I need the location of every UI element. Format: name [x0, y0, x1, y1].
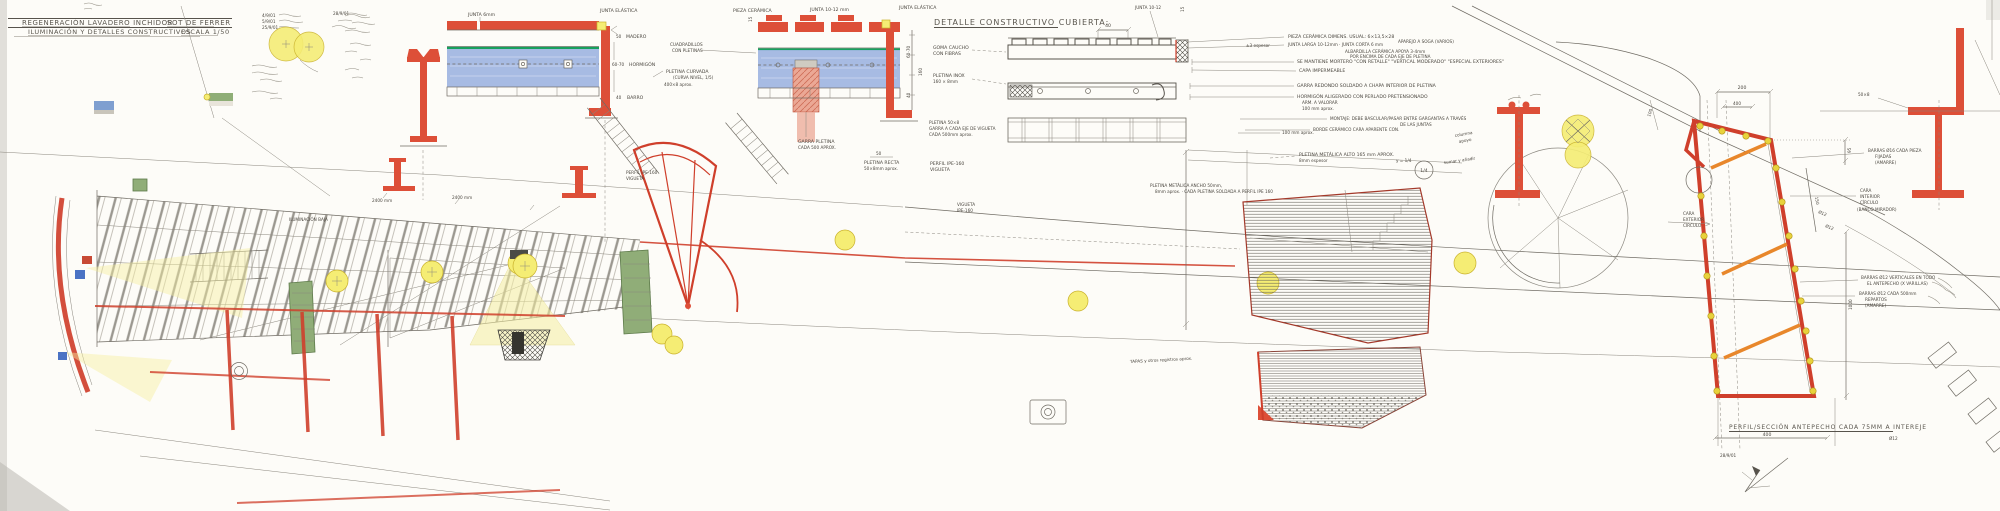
- dim-60-70: 60-70: [906, 45, 911, 58]
- dim-40: 40: [906, 92, 911, 98]
- label-junta-elastica: JUNTA ELÁSTICA: [599, 7, 638, 14]
- planter: [133, 179, 147, 191]
- note-50x8: 50×8: [1858, 92, 1870, 97]
- label-pletina-inox-2: 160 × 8mm: [933, 79, 958, 84]
- dim-400-bottom: 400: [1763, 432, 1772, 438]
- label-barras12r-3: (AMARRE): [1865, 303, 1886, 308]
- water-body: [758, 50, 900, 88]
- label-pletina-curvada-2: (CURVA NIVEL, 1/5): [673, 75, 714, 80]
- wall-fixture: [82, 256, 92, 264]
- label-perfil-ipe-2: VIGUETA: [930, 167, 951, 173]
- section-title-antepecho: PERFIL/SECCIÓN ANTEPECHO CADA 75MM A INT…: [1729, 424, 1927, 431]
- annotation: DE LAS JUNTAS: [1400, 122, 1432, 127]
- dim-hormigon: 60-70: [612, 62, 625, 67]
- mini-sketch-green: [209, 93, 233, 101]
- dim-100mm: 100 mm aprox.: [1282, 130, 1314, 135]
- label-cuadradillos-2: CON PLETINAS: [672, 48, 703, 53]
- label-garra-pletina-2: CADA 500 APROX.: [798, 145, 836, 150]
- scale-label: ESCALA 1/50: [181, 28, 230, 36]
- label-garra-eje: GARRA A CADA EJE DE VIGUETA: [929, 126, 996, 131]
- steel-edge-column: [886, 25, 894, 113]
- label-barras16-3: (AMARRE): [1875, 160, 1896, 165]
- label-cada-500: CADA 500mm aprox.: [929, 132, 973, 137]
- label-banco-mirador: (BANCO MIRADOR): [1857, 207, 1897, 212]
- steel-angle-vertical: [1956, 28, 1964, 114]
- label-cara-exterior: CARA: [1683, 211, 1695, 216]
- label-junta-top: JUNTA 10-12: [1134, 5, 1161, 10]
- section-title-cubierta: DETALLE CONSTRUCTIVO CUBIERTA:: [934, 18, 1109, 27]
- dim-95: 95: [1847, 147, 1852, 153]
- dim-200: 200: [1738, 85, 1747, 91]
- drawing-canvas: REGENERACIÓN LAVADERO INCHIDOR SOT DE FE…: [0, 0, 2000, 511]
- label-barras12r-2: REPARTOS: [1865, 297, 1887, 302]
- label-barras16: BARRAS Ø16 CADA PIEZA: [1868, 148, 1922, 153]
- annotation: CAPA IMPERMEABLE: [1299, 68, 1345, 74]
- label-pletina-50x8: PLETINA 50×8: [929, 120, 959, 125]
- label-pieza-ceramica: PIEZA CERÁMICA: [733, 7, 773, 14]
- label-barras12v-2: EL ANTEPECHO (X VARILLAS): [1867, 281, 1928, 286]
- label-pletina-alto-2: 8mm espesor: [1299, 158, 1328, 163]
- dim-400: 400: [1733, 101, 1741, 106]
- label-barras12r: BARRAS Ø12 CADA 500mm: [1859, 291, 1916, 296]
- label-cara-exterior-2: EXTERIOR: [1683, 217, 1704, 222]
- label-cara-interior: CARA: [1860, 188, 1872, 193]
- annotation: ARM. A VALORAR: [1302, 100, 1338, 105]
- annotation: GARRA REDONDO SOLDADO A CHAPA INTERIOR D…: [1297, 83, 1437, 89]
- dim-40-top: 40: [1105, 23, 1111, 29]
- annotation: PIEZA CERÁMICA DIMENS. USUAL: 6×13,5×28: [1288, 33, 1394, 40]
- dim-15: 15: [748, 16, 753, 22]
- crossed-luminaire: [1562, 115, 1594, 168]
- revision-date: 28/9/01: [1720, 453, 1736, 458]
- revision-date: 4/9/01: [262, 13, 276, 18]
- label-pletina-ancho-2: 8mm aprox. · CADA PLETINA SOLDADA A PERF…: [1155, 189, 1273, 194]
- label-junta-elastica: JUNTA ELÁSTICA: [898, 4, 937, 11]
- note-fraction: y = 1/4: [1396, 158, 1412, 163]
- label-hormigon: HORMIGÓN: [629, 61, 655, 68]
- annotation: APAREJO A SOGA (VARIOS): [1398, 39, 1454, 44]
- project-location: SOT DE FERRER: [167, 19, 231, 27]
- annotation: JUNTA LARGA 10-12mm · JUNTA CORTA 6 mm: [1287, 42, 1383, 47]
- label-perfil-ipe: PERFIL IPE-160: [930, 161, 964, 167]
- revision-date: 25/9/01: [262, 25, 278, 30]
- label-vigueta: VIGUETA: [957, 202, 975, 207]
- steel-edge-column: [601, 26, 610, 112]
- wall-fixture-blue: [75, 270, 85, 279]
- label-barras12v: BARRAS Ø12 VERTICALES EN TODO: [1861, 275, 1936, 280]
- dim-pletina-recta: 50: [876, 151, 882, 156]
- annotation: MONTAJE: DEBE BASCULAR/PASAR ENTRE GARGA…: [1330, 116, 1467, 121]
- project-title: REGENERACIÓN LAVADERO INCHIDOR: [22, 18, 173, 27]
- label-perfil-ipe-2: VIGUETA: [626, 176, 644, 181]
- dim-160: 160: [918, 68, 923, 76]
- annotation: POR ENCIMA DE CADA EJE DE PLETINA: [1350, 54, 1431, 59]
- ceramic-band: [447, 21, 599, 30]
- dim-dia12-bottom: Ø12: [1889, 436, 1898, 441]
- dim-madero: 50: [616, 34, 622, 39]
- note-fraction-circle: 1/4: [1420, 168, 1427, 174]
- label-pletina-ancho: PLETINA METÁLICA ANCHO 50mm,: [1150, 183, 1222, 188]
- annotation: BORDE CERÁMICO CARA APARENTE CON.: [1313, 127, 1399, 132]
- label-junta-6mm: JUNTA 6mm: [467, 12, 496, 18]
- dim-2400: 2400 mm: [372, 198, 392, 203]
- label-cuadradillos: CUADRADILLOS: [670, 42, 703, 47]
- ceramic-coping-bar: [1008, 45, 1176, 59]
- architectural-drawing-sheet: REGENERACIÓN LAVADERO INCHIDOR SOT DE FE…: [0, 0, 2000, 511]
- label-barro: BARRO: [627, 95, 644, 101]
- label-cara-exterior-3: CÍRCULO: [1683, 223, 1702, 228]
- label-goma-caucho-2: CON FIBRAS: [933, 51, 961, 57]
- label-cara-interior-3: CÍRCULO: [1860, 200, 1879, 205]
- label-pletina-curvada-3: 400×8 aprox.: [664, 82, 693, 87]
- dim-15b: 15: [1180, 6, 1185, 12]
- label-madero: MADERO: [626, 34, 647, 40]
- sheet-subtitle: ILUMINACIÓN Y DETALLES CONSTRUCTIVOS: [28, 27, 191, 36]
- annotation: 100 mm aprox.: [1302, 106, 1334, 111]
- label-junta-10-12: JUNTA 10-12 mm: [809, 7, 849, 13]
- annotation: SE MANTIENE MORTERO "CON RETALLE" "VERTI…: [1297, 59, 1504, 65]
- label-barras16-2: FIJADAS: [1875, 154, 1892, 159]
- dim-barro: 40: [616, 95, 622, 100]
- wall-fixture-blue: [58, 352, 67, 360]
- dim-2400: 2400 mm: [452, 195, 472, 200]
- label-perfil-ipe: PERFIL IPE-160: [626, 170, 658, 175]
- roof-hatch-main: [1243, 188, 1432, 343]
- base-course: [447, 87, 599, 96]
- revision-date: 5/9/01: [262, 19, 276, 24]
- dim-1000: 1000: [1848, 299, 1853, 310]
- steel-column: [420, 62, 427, 138]
- label-cara-interior-2: INTERIOR: [1860, 194, 1880, 199]
- mini-sketch-water: [94, 101, 114, 110]
- label-pletina-recta-2: 50×8mm aprox.: [864, 166, 898, 171]
- label-goma-caucho: GOMA CAUCHO: [933, 45, 969, 51]
- label-iluminacion-baja: ILUMINACIÓN BAJA: [289, 217, 328, 222]
- label-pletina-alto: PLETINA METÁLICA ALTO 165 mm APROX.: [1299, 151, 1394, 158]
- label-vigueta-2: IPE-160: [957, 208, 973, 213]
- annotation: ±3 espesor: [1246, 43, 1270, 48]
- annotation: HORMIGÓN ALIGERADO CON PERLADO PRETENSIO…: [1297, 93, 1428, 100]
